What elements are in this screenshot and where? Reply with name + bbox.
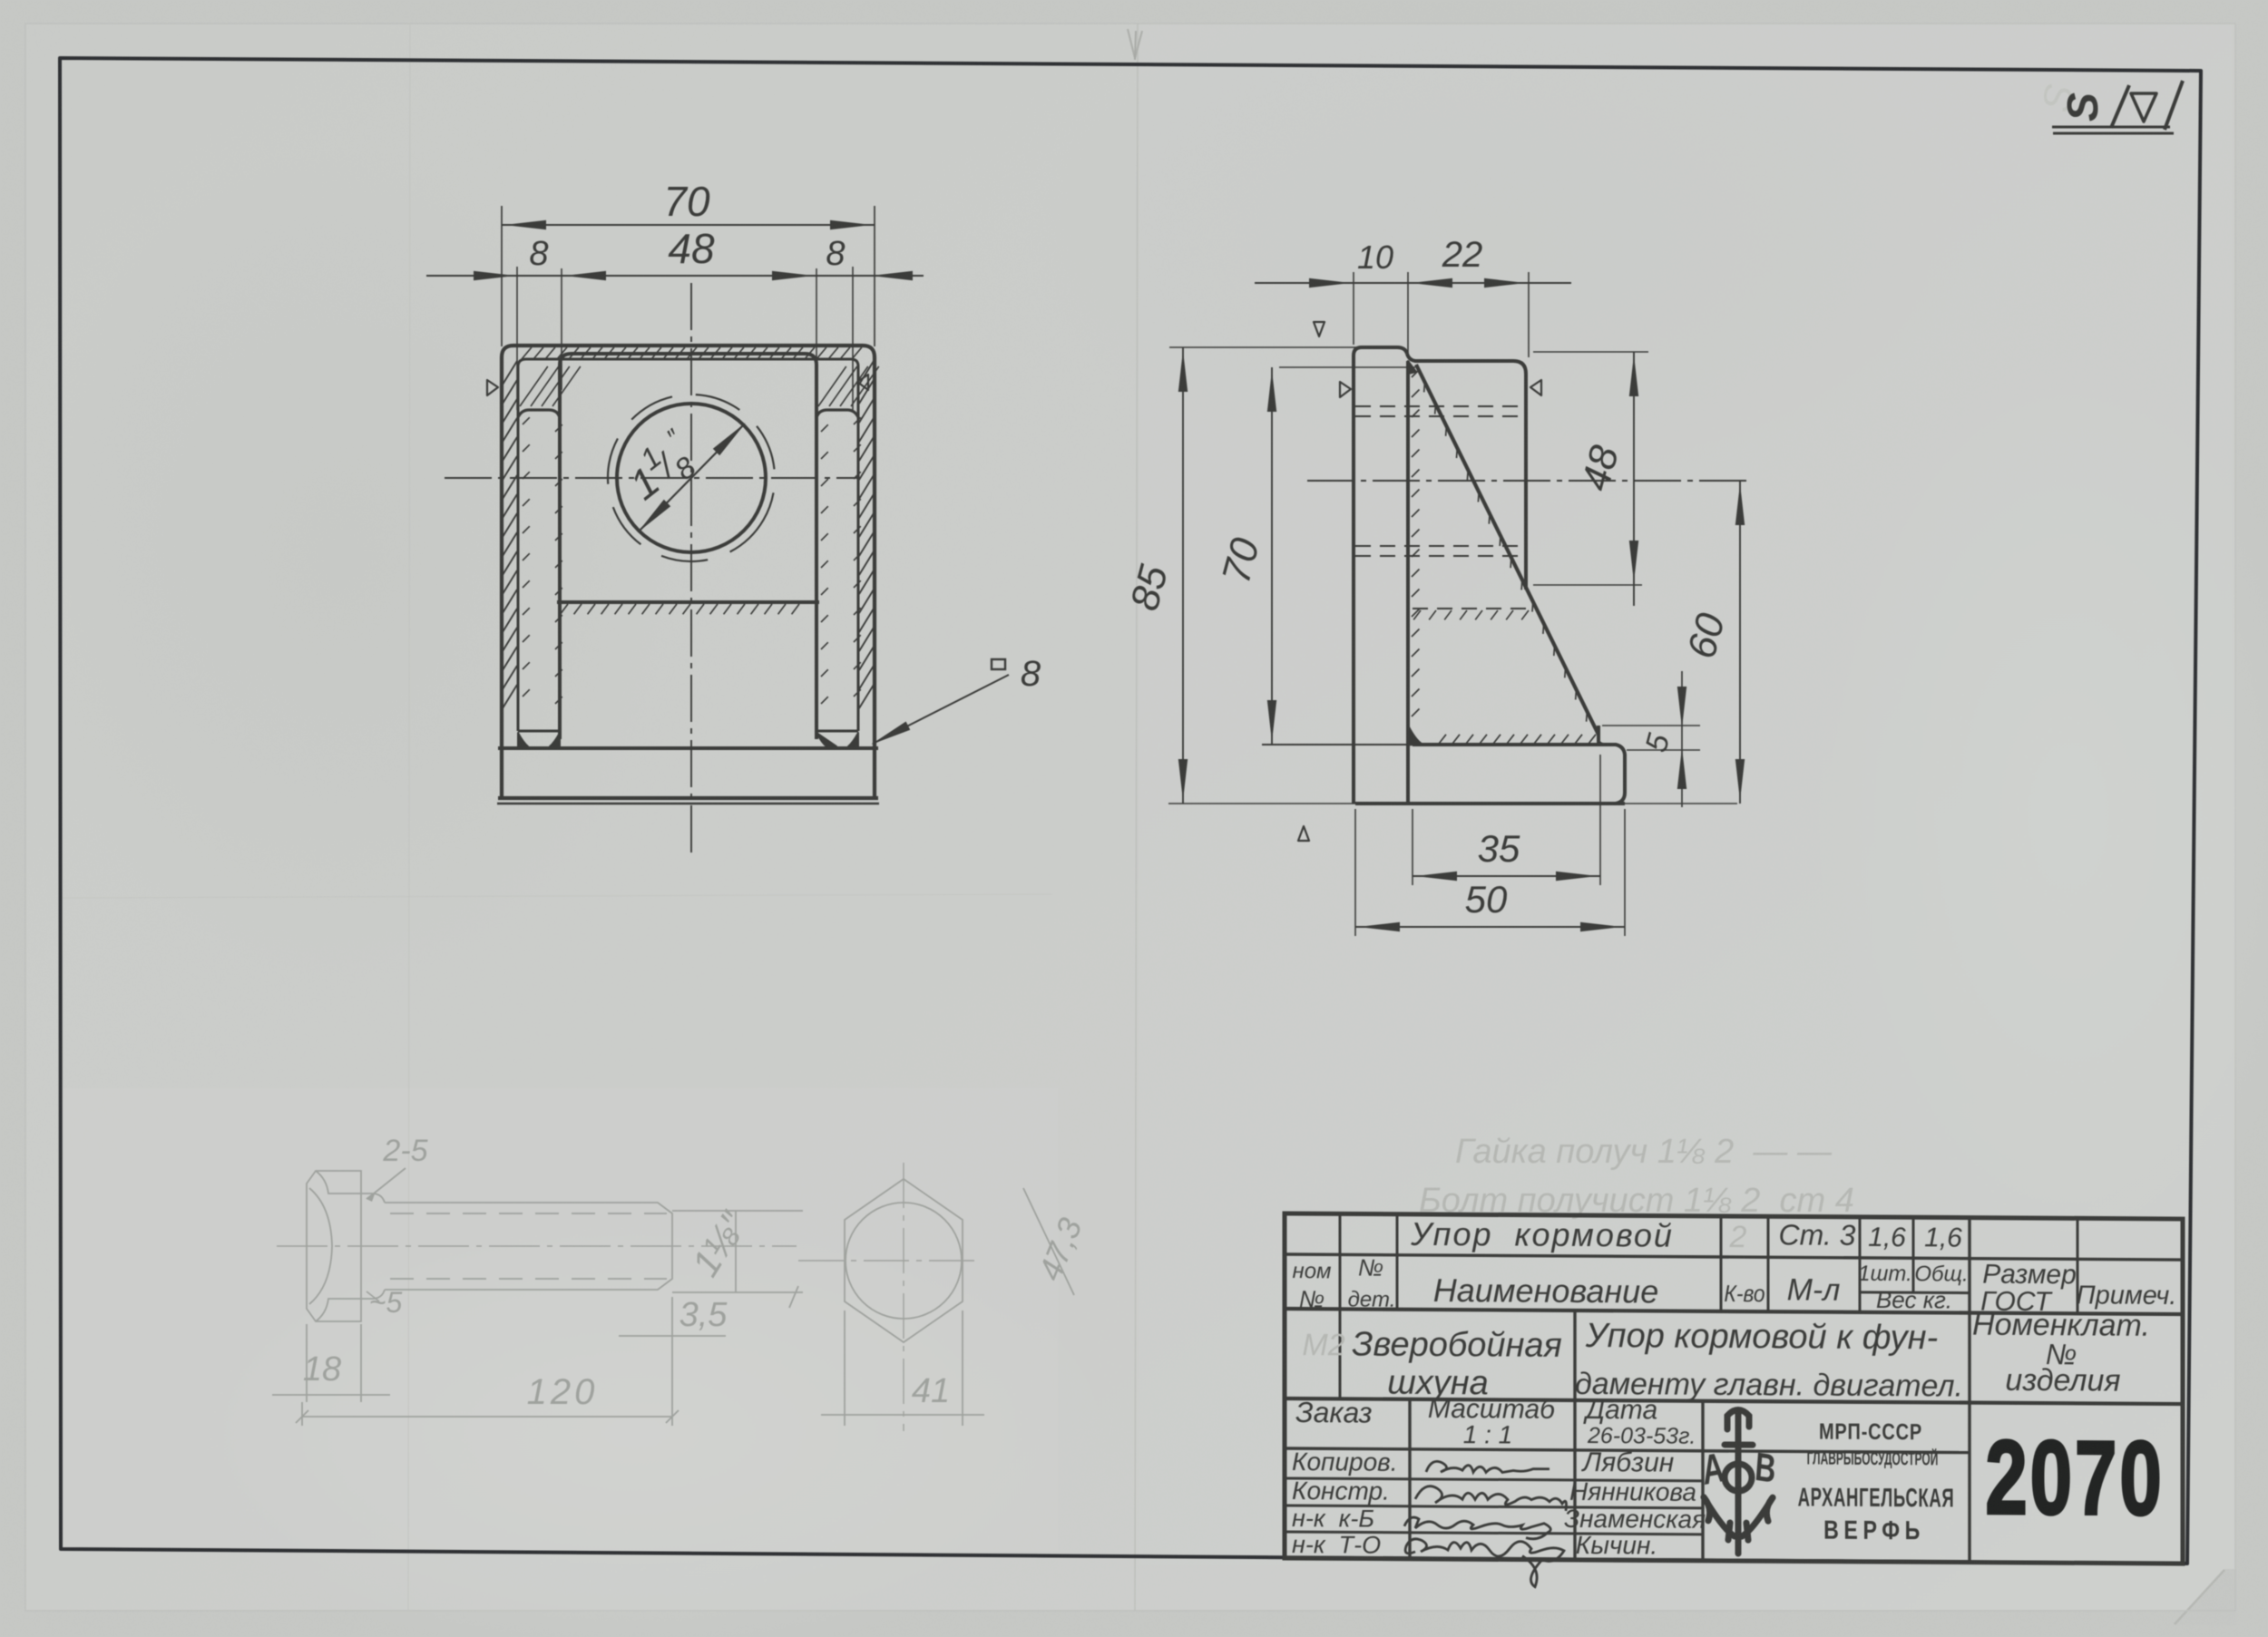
svg-text:Знаменская: Знаменская	[1564, 1505, 1706, 1534]
svg-text:ном: ном	[1292, 1259, 1331, 1283]
svg-text:ВЕРФЬ: ВЕРФЬ	[1823, 1515, 1925, 1545]
svg-text:70: 70	[663, 178, 710, 225]
svg-text:1,6: 1,6	[1924, 1223, 1962, 1252]
svg-text:Упор кормовой к фун-: Упор кормовой к фун-	[1585, 1317, 1938, 1357]
svg-text:М2: М2	[1302, 1328, 1344, 1362]
svg-text:18: 18	[303, 1350, 341, 1389]
svg-text:Кычин.: Кычин.	[1576, 1531, 1657, 1560]
svg-text:Нянникова: Нянникова	[1569, 1477, 1696, 1506]
svg-text:3,5: 3,5	[679, 1296, 728, 1334]
svg-text:Лябзин: Лябзин	[1581, 1447, 1675, 1478]
svg-text:22: 22	[1442, 235, 1483, 275]
svg-text:К-во: К-во	[1724, 1281, 1765, 1308]
svg-text:дет.: дет.	[1348, 1287, 1396, 1311]
svg-text:А: А	[1700, 1445, 1726, 1495]
svg-text:41: 41	[912, 1372, 950, 1410]
svg-text:№: №	[1358, 1253, 1383, 1281]
svg-text:Размер: Размер	[1982, 1260, 2077, 1291]
svg-text:~5: ~5	[369, 1286, 403, 1319]
svg-text:Гайка получ 1⅛ 2 — —: Гайка получ 1⅛ 2 — —	[1455, 1133, 1833, 1171]
svg-text:2-5: 2-5	[382, 1134, 427, 1168]
svg-text:50: 50	[1465, 878, 1508, 921]
svg-text:Зверобойная: Зверобойная	[1352, 1325, 1562, 1364]
svg-text:1 : 1: 1 : 1	[1463, 1420, 1512, 1448]
svg-text:Констр.: Констр.	[1292, 1476, 1390, 1505]
svg-text:Дата: Дата	[1583, 1395, 1657, 1426]
svg-text:В: В	[1754, 1445, 1777, 1493]
svg-text:8: 8	[1021, 654, 1041, 694]
svg-text:изделия: изделия	[2005, 1363, 2120, 1398]
svg-text:S: S	[2059, 93, 2107, 122]
svg-text:2: 2	[1729, 1220, 1747, 1254]
svg-text:Упор кормовой: Упор кормовой	[1410, 1215, 1674, 1254]
svg-text:8: 8	[826, 235, 845, 273]
svg-text:Заказ: Заказ	[1295, 1396, 1373, 1429]
svg-text:Копиров.: Копиров.	[1292, 1447, 1398, 1476]
svg-text:35: 35	[1478, 827, 1520, 870]
svg-text:Ст. 3: Ст. 3	[1779, 1218, 1856, 1252]
svg-text:26-03-53г.: 26-03-53г.	[1587, 1423, 1696, 1449]
svg-text:2070: 2070	[1985, 1419, 2164, 1537]
svg-text:Вес кг.: Вес кг.	[1876, 1286, 1952, 1314]
svg-text:М-л: М-л	[1787, 1272, 1841, 1307]
svg-text:Примеч.: Примеч.	[2077, 1281, 2177, 1311]
svg-text:АРХАНГЕЛЬСКАЯ: АРХАНГЕЛЬСКАЯ	[1798, 1483, 1955, 1513]
svg-text:1,6: 1,6	[1868, 1223, 1906, 1252]
svg-text:ГЛАВРЫБОСУДОСТРОЙ: ГЛАВРЫБОСУДОСТРОЙ	[1807, 1447, 1939, 1469]
svg-text:8: 8	[529, 235, 548, 273]
svg-text:Наименование: Наименование	[1433, 1272, 1658, 1311]
svg-text:10: 10	[1357, 239, 1393, 276]
svg-text:н-к к-Б: н-к к-Б	[1292, 1505, 1374, 1533]
svg-text:1шт.: 1шт.	[1858, 1262, 1912, 1286]
svg-text:Общ.: Общ.	[1914, 1262, 1968, 1286]
svg-text:48: 48	[668, 225, 715, 272]
svg-text:120: 120	[527, 1372, 599, 1412]
svg-text:МРП-СССР: МРП-СССР	[1819, 1419, 1922, 1445]
svg-text:н-к Т-О: н-к Т-О	[1292, 1531, 1381, 1559]
svg-text:№: №	[1299, 1285, 1325, 1312]
